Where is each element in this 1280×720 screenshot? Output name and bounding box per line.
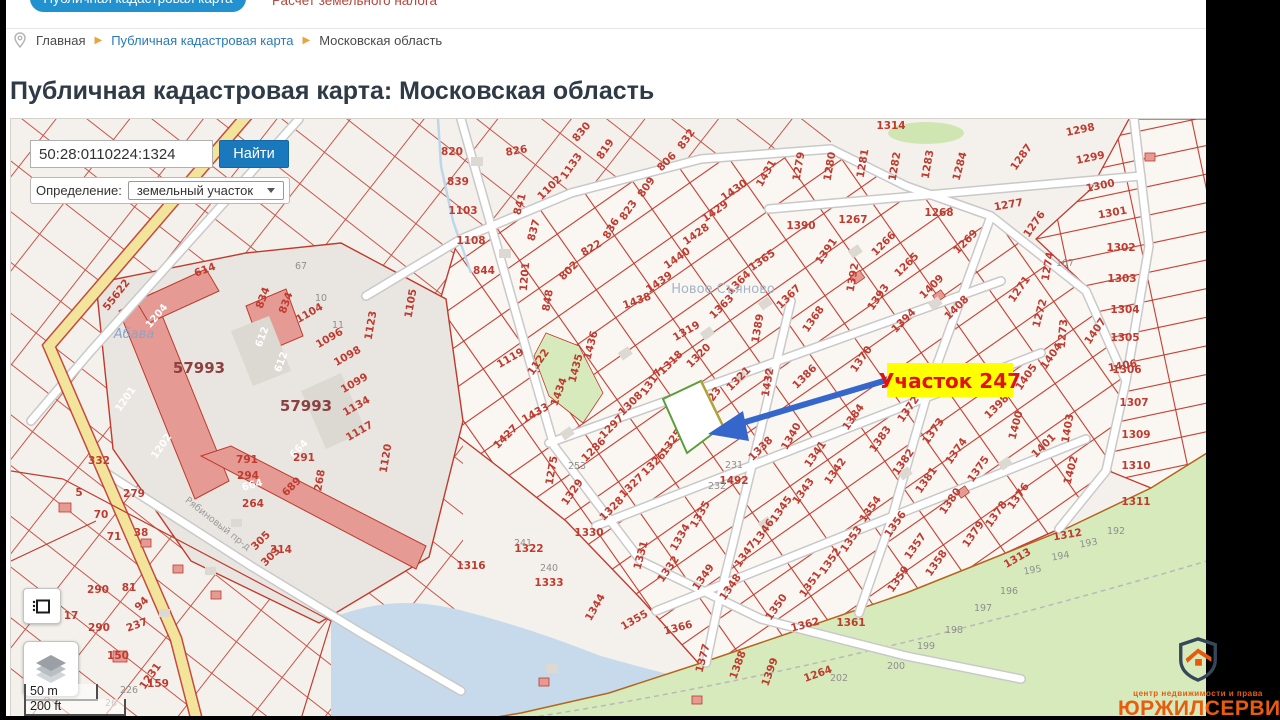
svg-text:839: 839	[447, 176, 469, 188]
svg-text:1361: 1361	[836, 617, 865, 629]
svg-text:1303: 1303	[1107, 273, 1136, 285]
definition-select[interactable]: земельный участок	[128, 181, 284, 200]
cadastral-map[interactable]: 5562282083911031108844826841837120111331…	[10, 118, 1208, 720]
layers-icon	[33, 653, 69, 685]
svg-text:1309: 1309	[1121, 429, 1150, 441]
breadcrumb-region: Московская область	[319, 33, 442, 48]
svg-text:70: 70	[94, 509, 109, 521]
svg-text:1305: 1305	[1110, 332, 1139, 344]
yurzhilservis-logo: центр недвижимости и права ЮРЖИЛСЕРВИС	[1118, 636, 1278, 720]
svg-text:1390: 1390	[786, 220, 815, 232]
breadcrumb: Главная ▶ Публичная кадастровая карта ▶ …	[14, 31, 442, 49]
svg-text:1103: 1103	[448, 205, 477, 217]
definition-value: земельный участок	[137, 183, 253, 198]
land-tax-link[interactable]: Расчет земельного налога	[272, 0, 437, 8]
svg-text:314: 314	[270, 544, 292, 556]
svg-text:159: 159	[147, 678, 169, 690]
svg-text:232: 232	[708, 481, 726, 492]
svg-text:67: 67	[295, 261, 307, 272]
svg-text:81: 81	[122, 582, 137, 594]
svg-text:1307: 1307	[1119, 397, 1148, 409]
svg-text:1268: 1268	[924, 207, 953, 219]
svg-text:240: 240	[540, 563, 558, 574]
svg-text:791: 791	[236, 454, 258, 466]
breadcrumb-pkk[interactable]: Публичная кадастровая карта	[111, 33, 293, 48]
svg-text:241: 241	[514, 538, 532, 549]
location-pin-icon	[14, 32, 26, 48]
svg-text:Участок 247: Участок 247	[879, 369, 1021, 393]
letterbox-bottom	[0, 716, 1280, 720]
plot-annotation: Участок 247	[879, 363, 1021, 397]
svg-text:196: 196	[1000, 586, 1018, 597]
svg-text:253: 253	[568, 461, 586, 472]
svg-text:279: 279	[123, 488, 145, 500]
svg-text:1267: 1267	[838, 214, 867, 226]
svg-text:1108: 1108	[456, 235, 485, 247]
measure-icon	[32, 596, 52, 616]
letterbox-left	[0, 0, 6, 720]
svg-text:1304: 1304	[1110, 304, 1139, 316]
top-navigation: Публичная кадастровая карта Расчет земел…	[0, 0, 1206, 29]
svg-text:1314: 1314	[876, 120, 905, 132]
svg-text:1302: 1302	[1106, 242, 1135, 254]
svg-text:1310: 1310	[1121, 460, 1150, 472]
svg-text:332: 332	[88, 455, 110, 467]
measure-button[interactable]	[23, 588, 61, 624]
svg-text:57993: 57993	[173, 359, 225, 377]
page-title: Публичная кадастровая карта: Московская …	[10, 77, 654, 106]
svg-text:38: 38	[134, 527, 149, 539]
svg-text:192: 192	[1107, 526, 1125, 537]
shield-house-icon	[1176, 636, 1220, 682]
map-canvas: 5562282083911031108844826841837120111331…	[11, 119, 1207, 719]
letterbox-right	[1206, 0, 1280, 720]
svg-text:202: 202	[830, 673, 848, 684]
tab-public-cadastral-map[interactable]: Публичная кадастровая карта	[30, 0, 246, 12]
svg-text:200: 200	[887, 661, 905, 672]
svg-text:1201: 1201	[518, 262, 533, 292]
find-button[interactable]: Найти	[219, 140, 289, 168]
svg-text:291: 291	[293, 452, 315, 464]
breadcrumb-separator-icon: ▶	[94, 35, 102, 46]
logo-name: ЮРЖИЛСЕРВИС	[1118, 697, 1278, 720]
cadastral-search-input[interactable]	[30, 140, 213, 168]
svg-text:264: 264	[242, 498, 264, 510]
svg-text:57993: 57993	[280, 397, 332, 415]
svg-text:199: 199	[917, 641, 935, 652]
svg-text:198: 198	[945, 625, 963, 636]
svg-text:1330: 1330	[574, 527, 603, 539]
map-scale: 50 m 200 ft	[24, 684, 126, 716]
svg-text:150: 150	[107, 650, 129, 662]
svg-text:17: 17	[64, 610, 79, 622]
svg-text:231: 231	[725, 460, 743, 471]
svg-text:290: 290	[88, 622, 110, 634]
svg-text:294: 294	[237, 470, 259, 482]
breadcrumb-separator-icon: ▶	[302, 35, 310, 46]
page: Публичная кадастровая карта Расчет земел…	[0, 0, 1280, 720]
svg-text:167: 167	[1056, 258, 1074, 269]
scale-imperial: 200 ft	[24, 699, 126, 716]
svg-text:197: 197	[974, 603, 992, 614]
svg-text:820: 820	[441, 146, 463, 158]
svg-text:1311: 1311	[1121, 496, 1150, 508]
svg-text:290: 290	[87, 584, 109, 596]
svg-text:Абава: Абава	[113, 327, 155, 342]
svg-text:5: 5	[75, 487, 82, 499]
svg-text:Новое Съяново: Новое Съяново	[671, 282, 775, 297]
svg-text:844: 844	[473, 265, 495, 277]
svg-text:71: 71	[107, 531, 122, 543]
chevron-down-icon	[267, 188, 275, 193]
svg-text:1316: 1316	[456, 560, 485, 572]
svg-text:1333: 1333	[534, 577, 563, 589]
definition-filter: Определение: земельный участок	[30, 177, 290, 204]
breadcrumb-home[interactable]: Главная	[36, 33, 85, 48]
definition-label: Определение:	[36, 183, 122, 198]
